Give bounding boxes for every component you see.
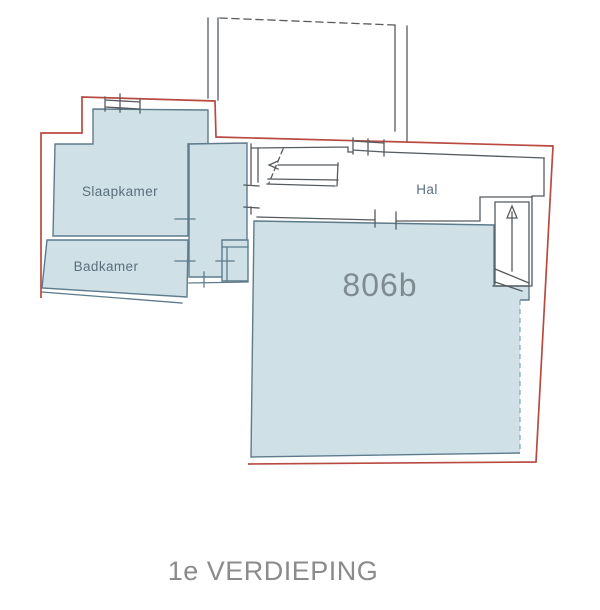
dashed-roof-line bbox=[220, 18, 394, 25]
slaapkamer-label: Slaapkamer bbox=[82, 184, 158, 199]
unit-806b-fill bbox=[251, 221, 529, 457]
hal-top-wall-left bbox=[252, 147, 353, 152]
corridor-outer-wall-line bbox=[189, 282, 248, 283]
stairs-down bbox=[258, 148, 338, 186]
hal-east-walls bbox=[493, 158, 544, 286]
floorplan-drawing: Slaapkamer Badkamer Hal 806b 1e VERDIEPI… bbox=[0, 0, 600, 610]
slaapkamer-room bbox=[53, 109, 208, 236]
hal-top-wall-right bbox=[384, 152, 544, 158]
unit-806b-room bbox=[251, 221, 529, 457]
stairs-down-arrow-icon bbox=[269, 161, 278, 169]
hal-label: Hal bbox=[416, 182, 437, 197]
stairs-down-outline bbox=[258, 148, 338, 186]
unit-806b-label: 806b bbox=[342, 267, 417, 303]
dormer-outline bbox=[208, 18, 407, 141]
badkamer-label: Badkamer bbox=[74, 259, 139, 274]
stairs-up bbox=[495, 202, 529, 291]
floorplan-page: Slaapkamer Badkamer Hal 806b 1e VERDIEPI… bbox=[0, 0, 600, 610]
hal-south-walls bbox=[257, 197, 532, 221]
floor-title: 1e VERDIEPING bbox=[168, 556, 379, 586]
